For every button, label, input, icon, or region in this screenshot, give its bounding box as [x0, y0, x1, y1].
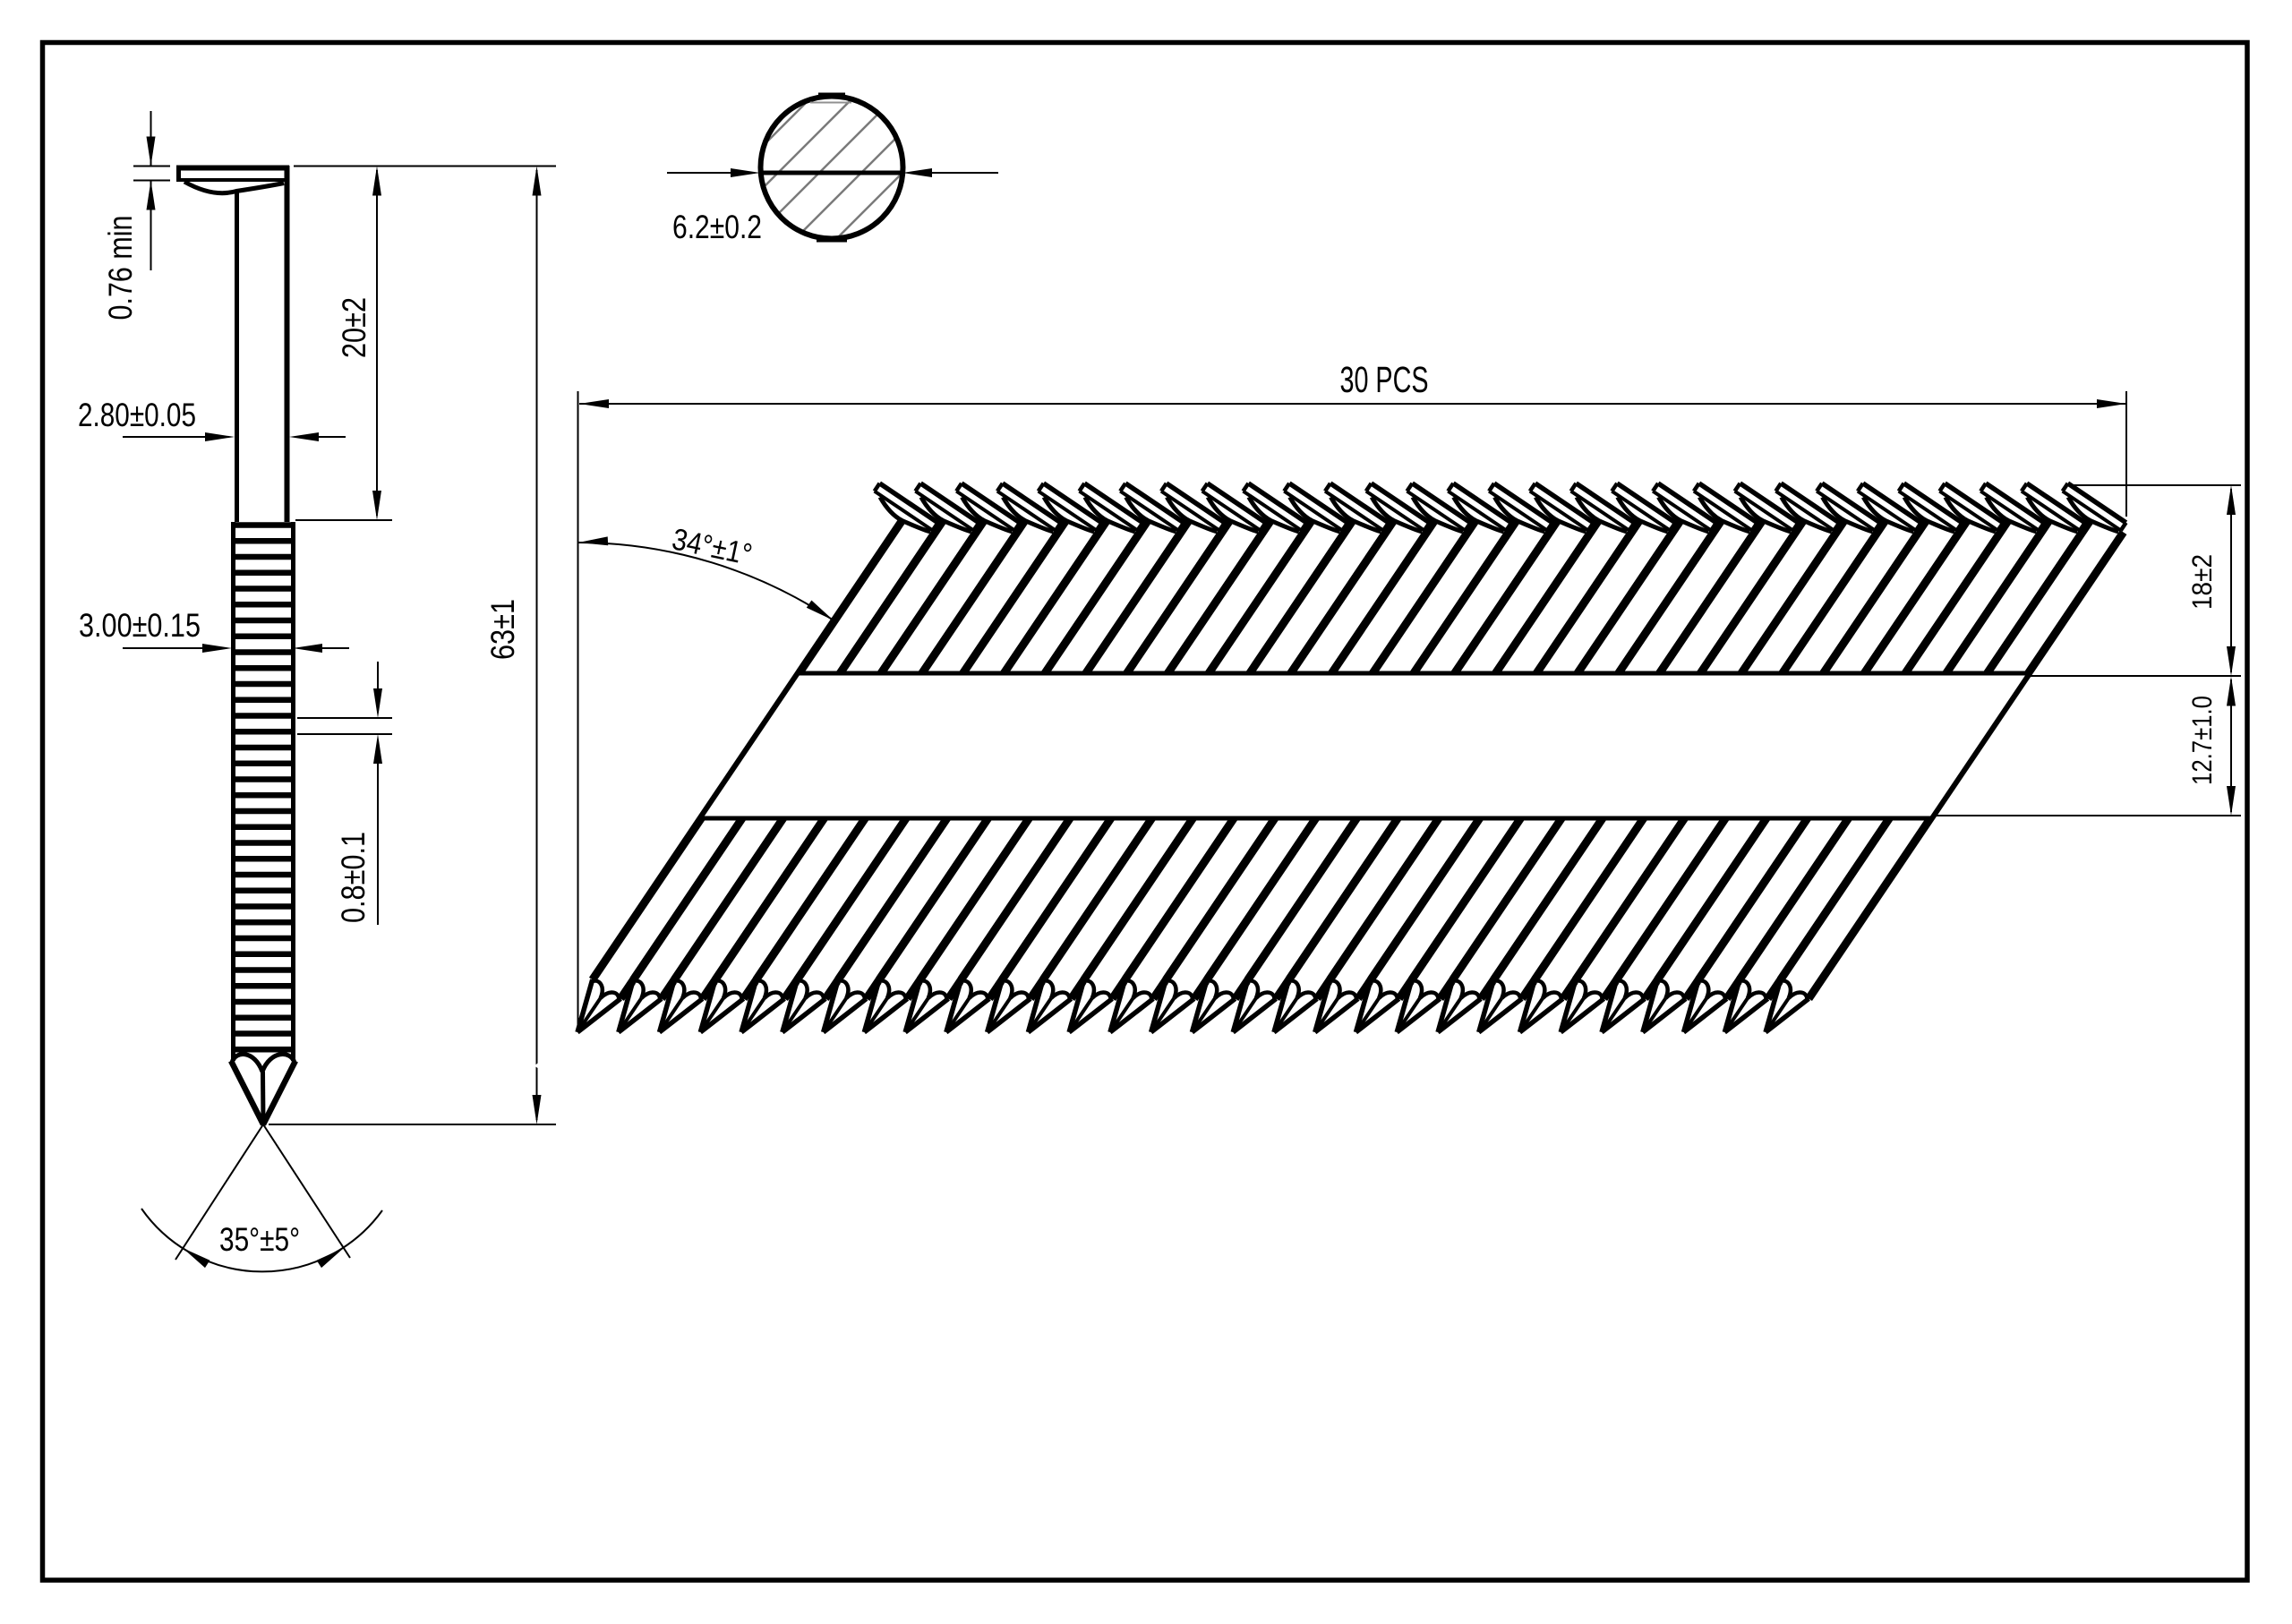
svg-text:20±2: 20±2: [336, 297, 372, 358]
svg-text:3.00±0.15: 3.00±0.15: [79, 607, 201, 644]
svg-text:0.8±0.1: 0.8±0.1: [335, 832, 372, 923]
svg-text:2.80±0.05: 2.80±0.05: [78, 397, 196, 433]
svg-text:63±1: 63±1: [484, 599, 521, 660]
svg-text:35°±5°: 35°±5°: [219, 1221, 300, 1258]
svg-text:30 PCS: 30 PCS: [1340, 359, 1429, 400]
svg-text:18±2: 18±2: [2186, 554, 2218, 610]
svg-text:0.76 min: 0.76 min: [102, 216, 139, 321]
svg-text:12.7±1.0: 12.7±1.0: [2186, 696, 2218, 785]
svg-text:6.2±0.2: 6.2±0.2: [672, 209, 762, 245]
